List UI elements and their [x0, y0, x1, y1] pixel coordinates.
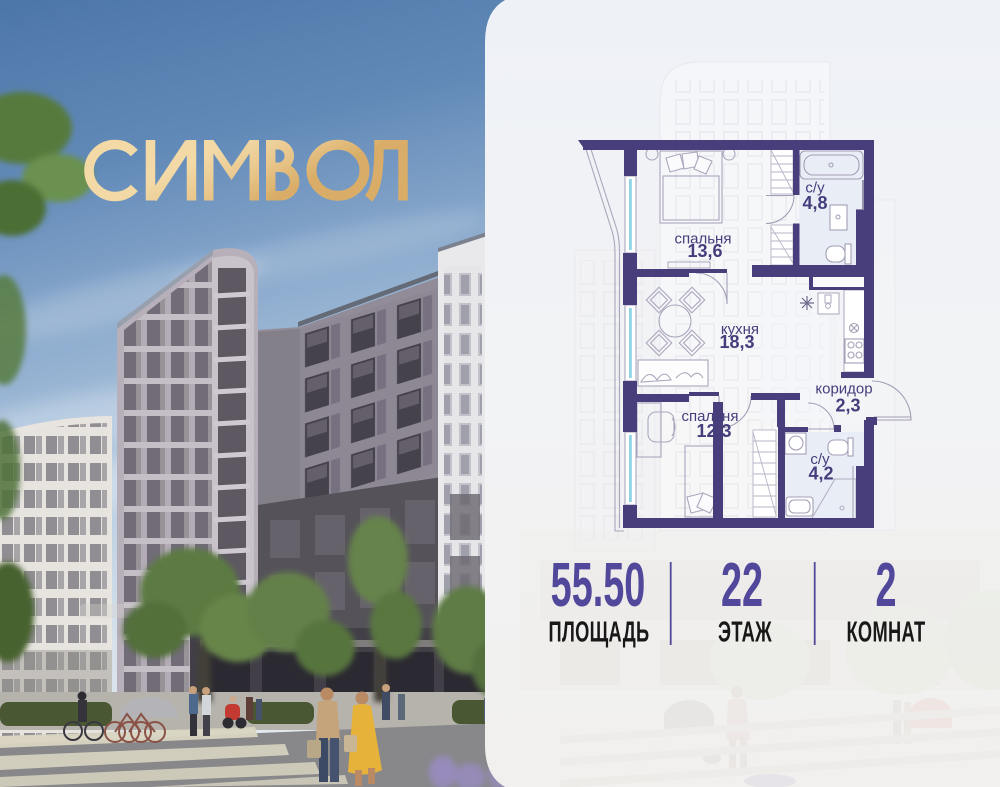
svg-text:4,8: 4,8 — [802, 193, 827, 213]
svg-text:22: 22 — [721, 550, 763, 619]
svg-text:2: 2 — [875, 550, 896, 619]
svg-text:2,3: 2,3 — [835, 396, 860, 416]
svg-text:13,6: 13,6 — [687, 241, 722, 261]
svg-text:ПЛОЩАДЬ: ПЛОЩАДЬ — [549, 616, 650, 648]
svg-text:КОМНАТ: КОМНАТ — [846, 616, 925, 648]
svg-text:12,3: 12,3 — [696, 421, 731, 441]
svg-text:18,3: 18,3 — [719, 332, 754, 352]
svg-text:55.50: 55.50 — [551, 550, 646, 619]
svg-text:ЭТАЖ: ЭТАЖ — [718, 616, 772, 648]
svg-text:4,2: 4,2 — [808, 464, 833, 484]
